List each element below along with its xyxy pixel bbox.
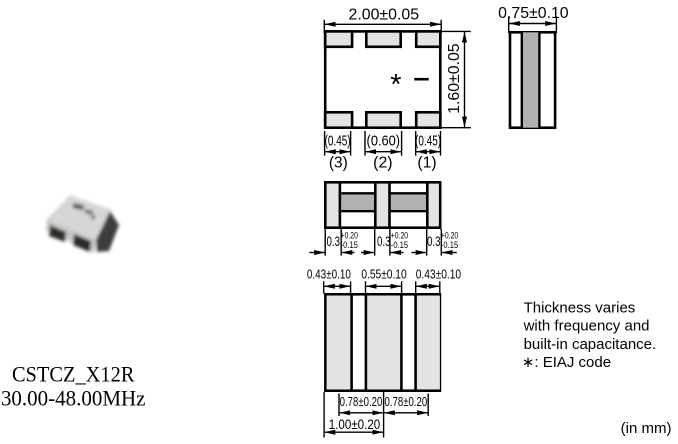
svg-text:(0.60): (0.60): [367, 132, 401, 149]
svg-text:with frequency and: with frequency and: [523, 318, 650, 335]
svg-text:30.00-48.00MHz: 30.00-48.00MHz: [1, 385, 146, 410]
svg-text:0.3: 0.3: [327, 234, 341, 249]
svg-text:2.00±0.05: 2.00±0.05: [349, 7, 420, 24]
svg-text:0.75±0.10: 0.75±0.10: [498, 5, 569, 22]
svg-text:1.60±0.05: 1.60±0.05: [446, 43, 463, 114]
svg-text:∗: EIAJ code: ∗: EIAJ code: [522, 354, 611, 371]
svg-text:(in mm): (in mm): [621, 420, 672, 437]
svg-text:-0.15: -0.15: [391, 240, 408, 251]
svg-text:(3): (3): [329, 155, 348, 172]
svg-text:0.55±0.10: 0.55±0.10: [361, 268, 406, 282]
svg-text:(0.45): (0.45): [325, 132, 351, 149]
svg-text:1.00±0.20: 1.00±0.20: [329, 417, 381, 432]
svg-text:0.3: 0.3: [377, 234, 391, 249]
svg-text:0.78±0.20: 0.78±0.20: [385, 395, 428, 409]
svg-text:-0.15: -0.15: [341, 240, 358, 251]
svg-text:Thickness varies: Thickness varies: [524, 300, 636, 317]
svg-text:CSTCZ_X12R: CSTCZ_X12R: [12, 362, 135, 387]
svg-text:built-in capacitance.: built-in capacitance.: [524, 336, 657, 353]
svg-text:(2): (2): [373, 155, 392, 172]
svg-text:-0.15: -0.15: [441, 240, 458, 251]
svg-text:0.3: 0.3: [427, 234, 441, 249]
svg-text:*: *: [390, 69, 401, 101]
svg-text:(1): (1): [417, 155, 436, 172]
svg-text:(0.45): (0.45): [415, 132, 441, 149]
svg-text:0.43±0.10: 0.43±0.10: [307, 268, 351, 282]
svg-text:0.43±0.10: 0.43±0.10: [416, 268, 461, 282]
svg-text:0.78±0.20: 0.78±0.20: [340, 395, 383, 409]
